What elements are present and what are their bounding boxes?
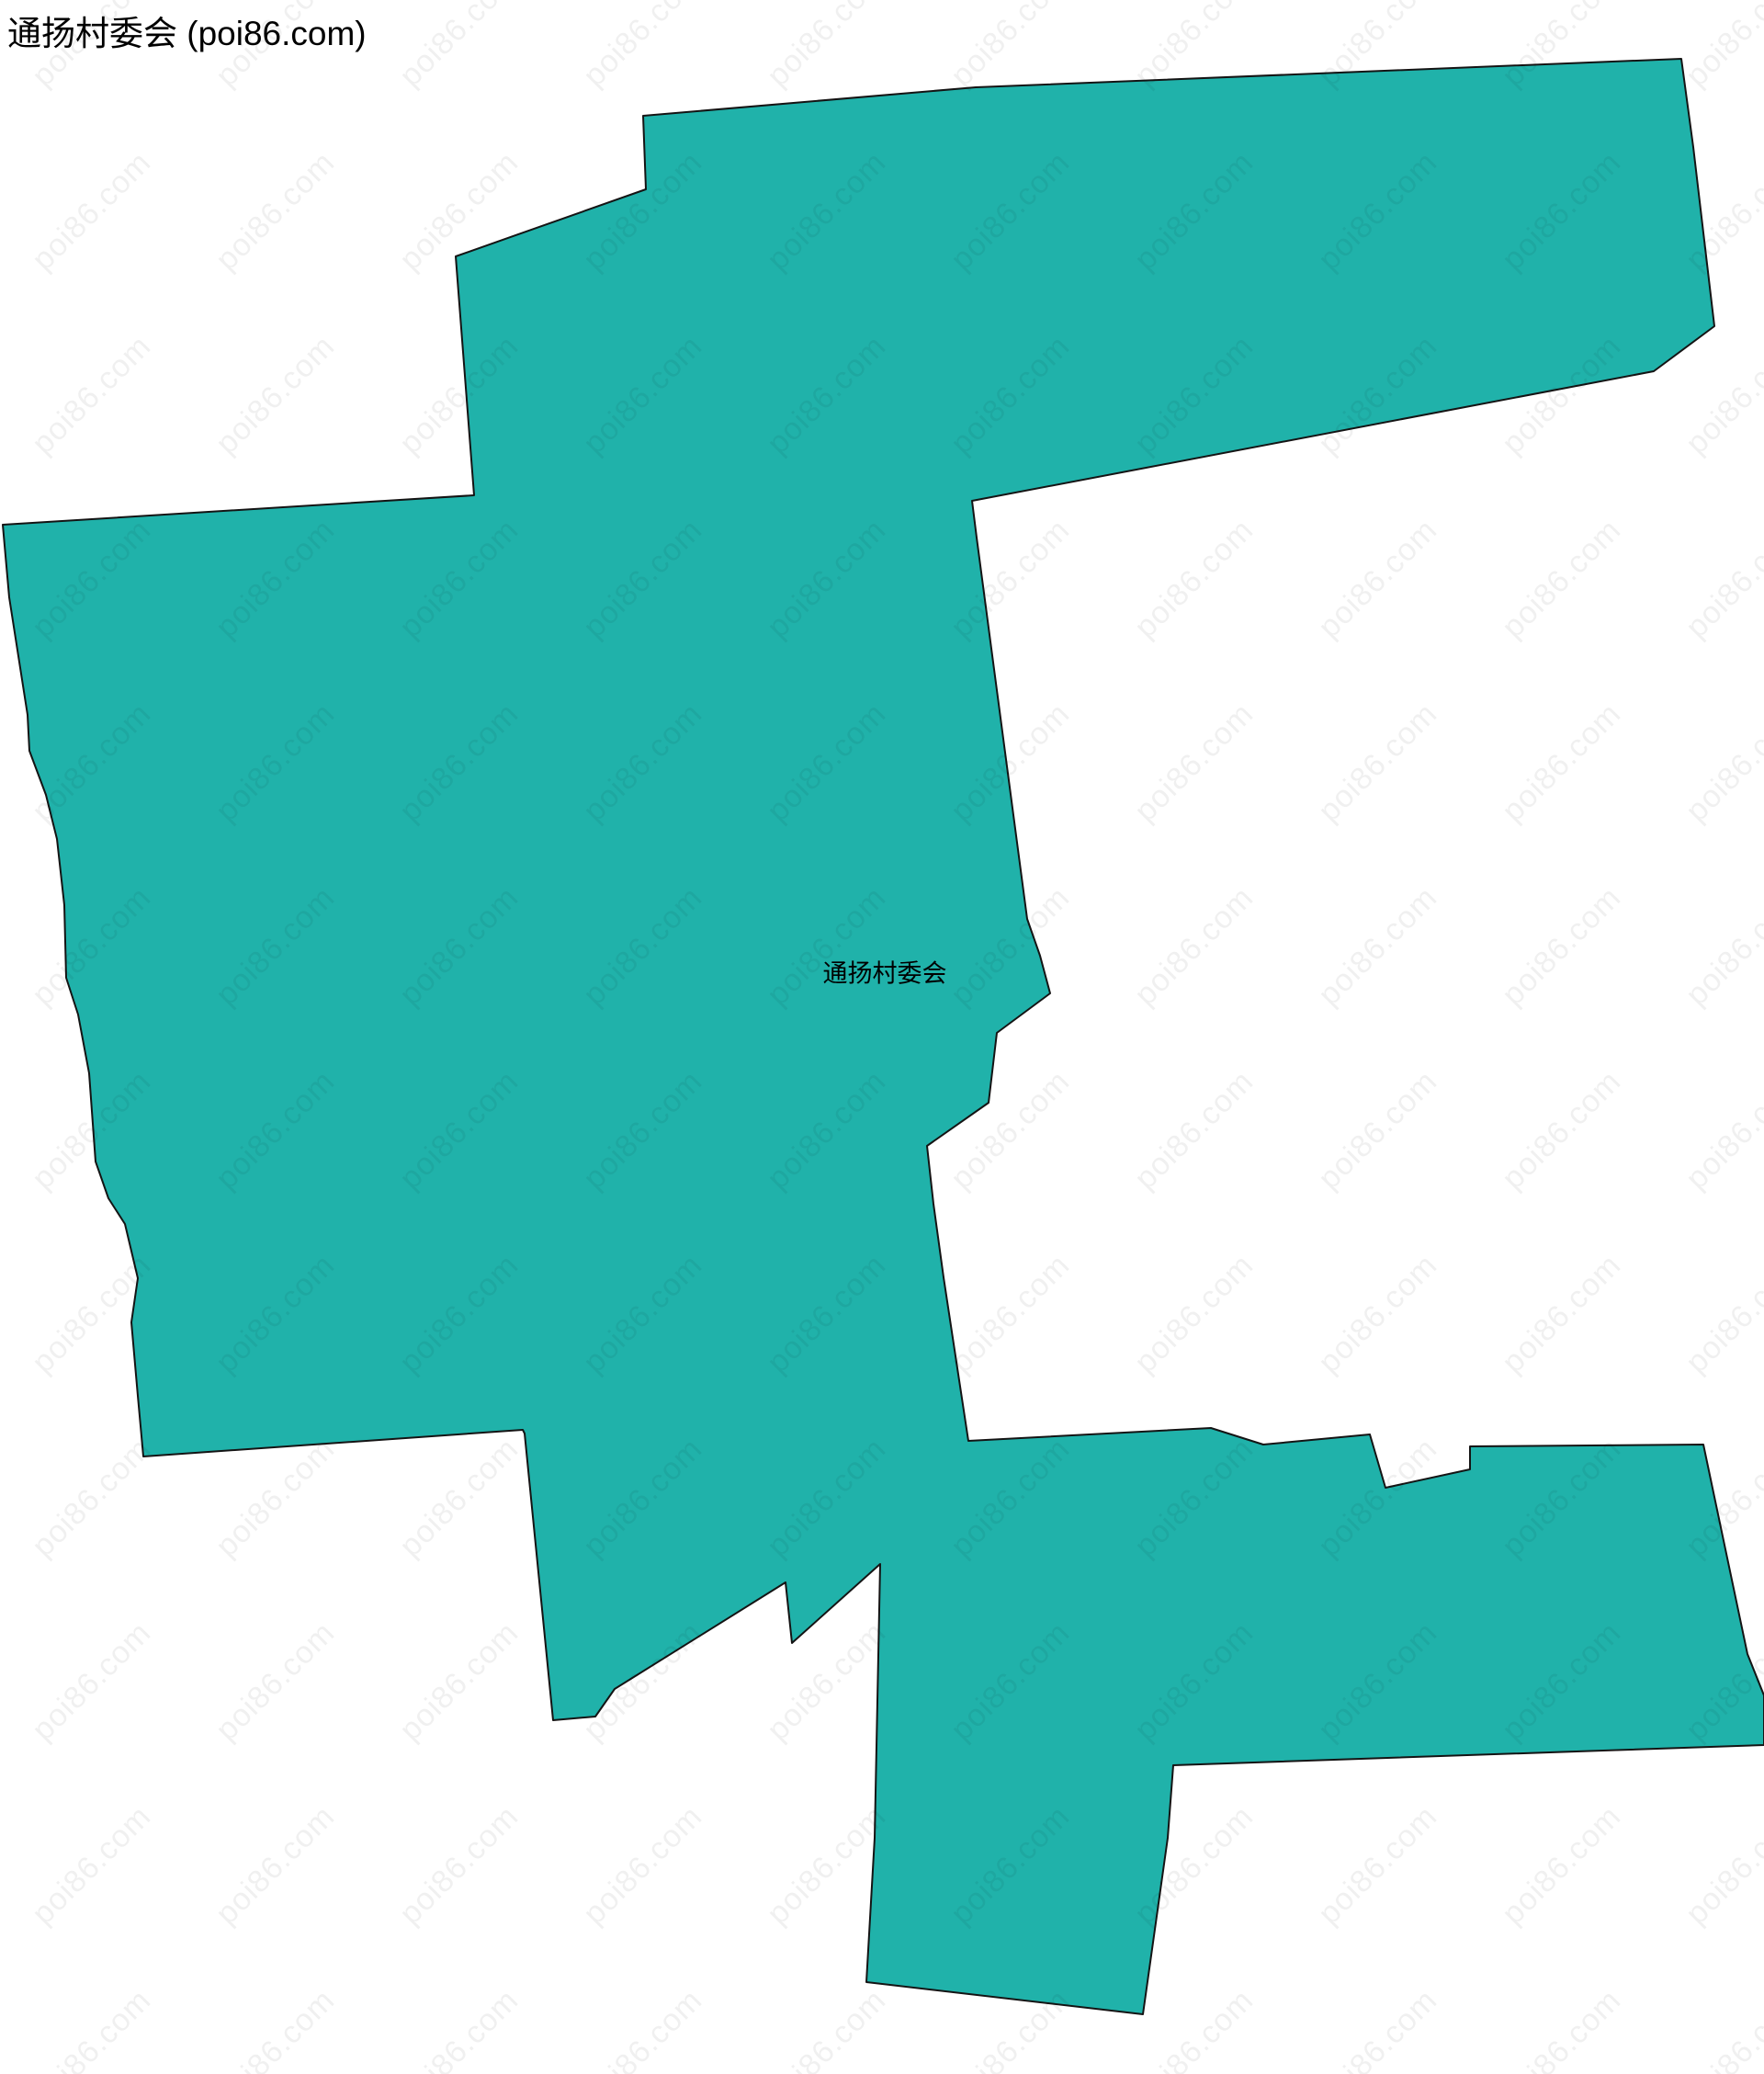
- page-title: 通扬村委会 (poi86.com): [7, 6, 367, 55]
- region-map: [0, 0, 1764, 2074]
- region-boundary-polygon: [3, 59, 1764, 2014]
- region-label: 通扬村委会: [823, 954, 947, 990]
- map-page: poi86.compoi86.compoi86.compoi86.compoi8…: [0, 0, 1764, 2074]
